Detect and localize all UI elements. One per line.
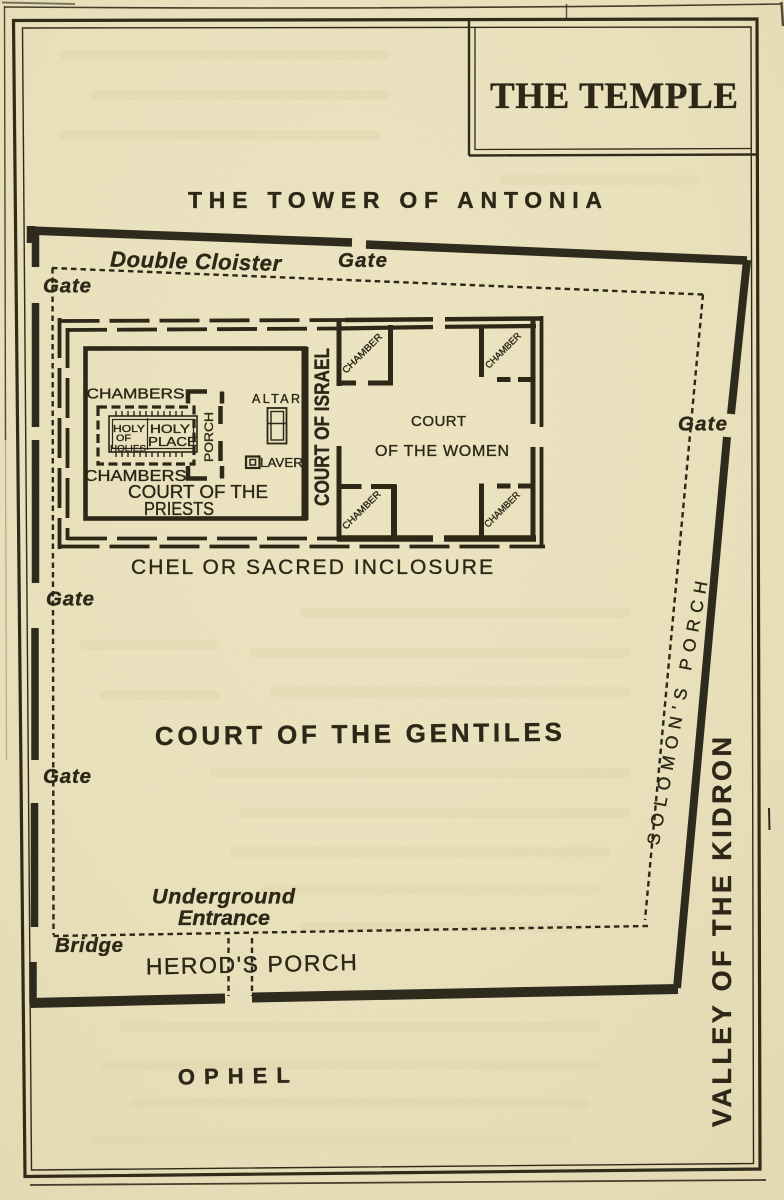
svg-text:VALLEY OF THE KIDRON: VALLEY OF THE KIDRON	[707, 737, 737, 1127]
svg-text:Gate: Gate	[678, 413, 727, 436]
svg-text:OF: OF	[116, 433, 132, 443]
svg-text:THE TEMPLE: THE TEMPLE	[490, 76, 738, 117]
svg-text:Gate: Gate	[338, 249, 387, 272]
svg-text:CHEL OR SACRED INCLOSURE: CHEL OR SACRED INCLOSURE	[131, 556, 493, 579]
svg-text:COURT: COURT	[411, 413, 466, 430]
svg-text:Gate: Gate	[43, 765, 91, 788]
svg-text:Bridge: Bridge	[55, 934, 123, 957]
svg-text:Gate: Gate	[46, 588, 94, 611]
svg-text:OF THE WOMEN: OF THE WOMEN	[375, 443, 509, 460]
svg-text:Entrance: Entrance	[178, 906, 270, 930]
svg-text:Double Cloister: Double Cloister	[110, 247, 283, 277]
svg-text:Gate: Gate	[43, 275, 91, 298]
svg-text:LAVER: LAVER	[260, 455, 303, 470]
svg-text:HEROD'S PORCH: HEROD'S PORCH	[146, 949, 357, 979]
svg-text:Underground: Underground	[152, 885, 296, 909]
svg-text:ALTAR: ALTAR	[252, 392, 300, 406]
svg-text:COURT OF ISRAEL: COURT OF ISRAEL	[311, 348, 334, 506]
svg-text:PORCH: PORCH	[202, 412, 216, 462]
svg-text:HOLIES: HOLIES	[110, 444, 146, 455]
svg-text:PRIESTS: PRIESTS	[144, 498, 214, 519]
svg-text:CHAMBERS: CHAMBERS	[87, 387, 185, 403]
svg-text:HOLY: HOLY	[150, 422, 190, 436]
svg-text:PLACE: PLACE	[148, 435, 197, 449]
